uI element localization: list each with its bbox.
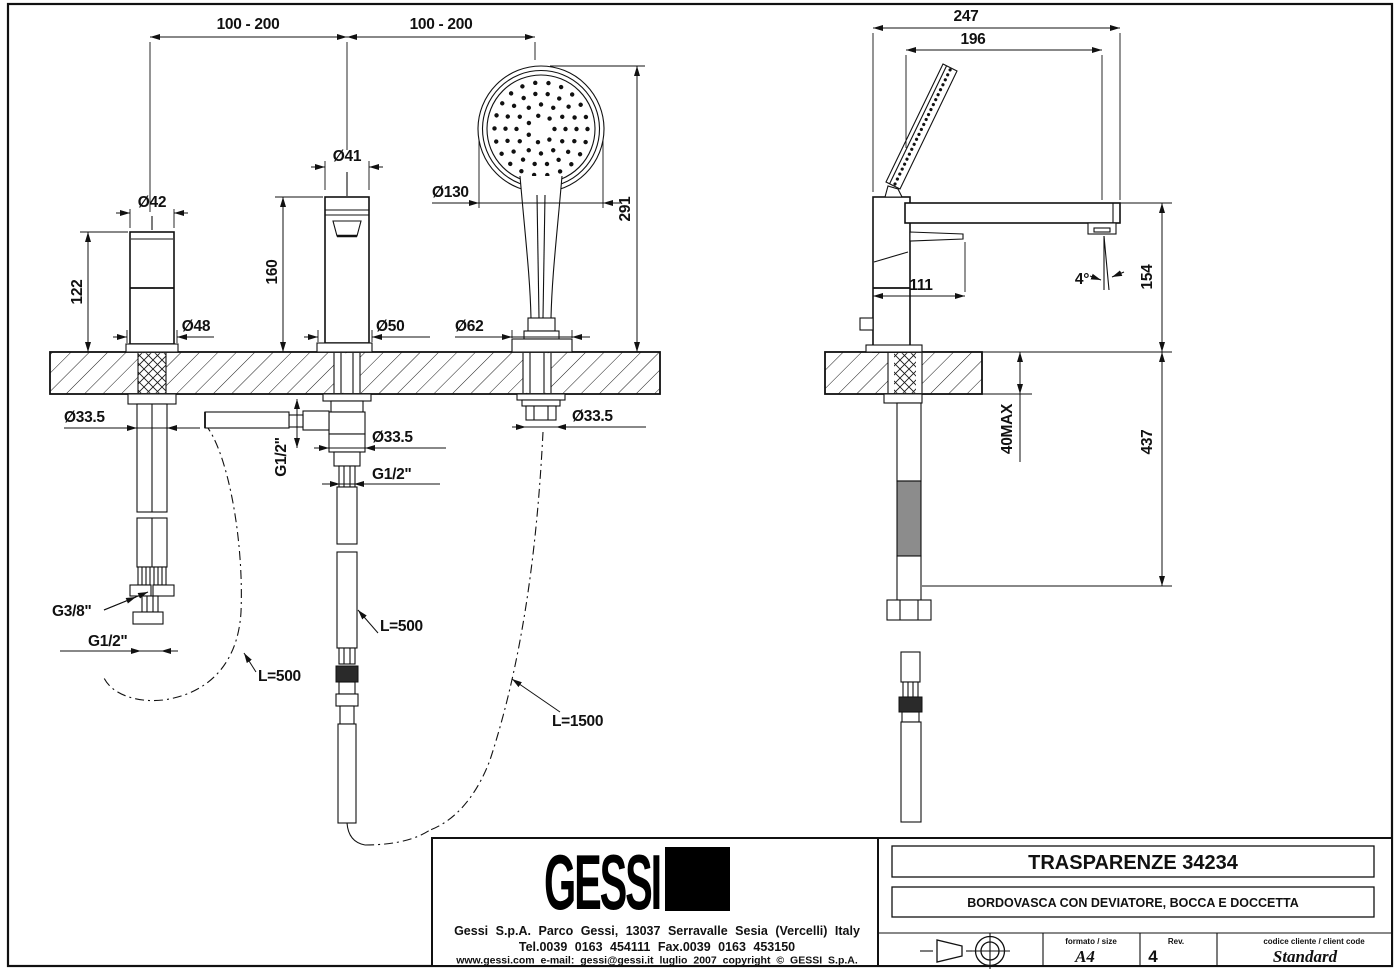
manufacturer-box: GESSI Gessi S.p.A. Parco Gessi, 13037 Se… (432, 838, 878, 967)
dim-span-right: 100 - 200 (410, 16, 473, 33)
side-deck (825, 352, 982, 394)
dim-shower-height: 291 (617, 196, 634, 222)
dim-shower-head-dia: Ø130 (432, 184, 469, 201)
product-series: TRASPARENZE 34234 (1028, 852, 1239, 874)
gessi-logo: GESSI (544, 838, 660, 926)
client-code-value: Standard (1273, 947, 1338, 966)
label-thread-g12: G1/2" (88, 633, 127, 650)
supply-hose-loop (104, 424, 241, 701)
dim-spout-dia-base: Ø50 (376, 318, 404, 335)
dim-handle-hole: Ø33.5 (64, 409, 105, 426)
dim-handle-height: 122 (69, 280, 86, 305)
dim-spout-height: 160 (264, 260, 281, 285)
dim-spout-hole: Ø33.5 (372, 429, 413, 446)
company-phone: Tel.0039 0163 454111 Fax.0039 0163 45315… (519, 940, 795, 954)
revision-value: 4 (1148, 947, 1158, 966)
client-code-label: codice cliente / client code (1263, 937, 1365, 946)
dim-spout-angle: 4° (1075, 271, 1089, 288)
handle-hoses (104, 404, 241, 701)
spout-fixture (317, 172, 372, 352)
front-deck (50, 352, 660, 394)
dim-reach: 111 (909, 277, 933, 294)
label-hose-supply-length: L=500 (258, 668, 301, 685)
dim-deck-thickness: 40MAX (999, 403, 1016, 454)
format-value: A4 (1074, 947, 1095, 966)
dim-span-left: 100 - 200 (217, 16, 280, 33)
dim-depth-below-deck: 437 (1139, 430, 1156, 455)
label-hose-shower-length: L=1500 (552, 713, 603, 730)
dim-shower-hole: Ø33.5 (572, 408, 613, 425)
product-description: BORDOVASCA CON DEVIATORE, BOCCA E DOCCET… (967, 896, 1299, 910)
side-spout (905, 203, 1120, 223)
product-box: TRASPARENZE 34234 BORDOVASCA CON DEVIATO… (878, 838, 1392, 969)
gessi-logo-square (665, 847, 730, 911)
dim-spout-thread-side: G1/2" (273, 437, 290, 476)
dim-depth-total: 247 (954, 8, 979, 25)
revision-label: Rev. (1168, 937, 1184, 946)
company-web-line: www.gessi.com e-mail: gessi@gessi.it lug… (455, 955, 858, 967)
dim-shower-dia-base: Ø62 (455, 318, 483, 335)
drawing-canvas: 100 - 200 100 - 200 Ø42 122 Ø48 Ø33.5 Ø4… (0, 0, 1398, 973)
dim-handle-dia-base: Ø48 (182, 318, 211, 335)
format-label: formato / size (1065, 937, 1117, 946)
dim-height-above-deck: 154 (1139, 264, 1156, 290)
side-lever (910, 232, 963, 241)
dim-spout-dia-top: Ø41 (333, 148, 362, 165)
side-hoses (887, 403, 931, 822)
dim-depth-head: 196 (961, 31, 987, 48)
label-hose-mid-length: L=500 (380, 618, 423, 635)
dim-spout-thread-bottom: G1/2" (372, 466, 411, 483)
technical-drawing-sheet: 100 - 200 100 - 200 Ø42 122 Ø48 Ø33.5 Ø4… (0, 0, 1398, 973)
side-view: 247 196 111 4° 154 40MAX 437 (825, 8, 1172, 822)
title-block: GESSI Gessi S.p.A. Parco Gessi, 13037 Se… (432, 838, 1392, 969)
dim-handle-dia-top: Ø42 (138, 194, 166, 211)
front-view: 100 - 200 100 - 200 Ø42 122 Ø48 Ø33.5 Ø4… (50, 16, 660, 845)
handshower-hose-path (430, 432, 543, 830)
label-thread-g38: G3/8" (52, 603, 91, 620)
company-address: Gessi S.p.A. Parco Gessi, 13037 Serraval… (454, 924, 860, 938)
sheet-border (8, 4, 1392, 966)
